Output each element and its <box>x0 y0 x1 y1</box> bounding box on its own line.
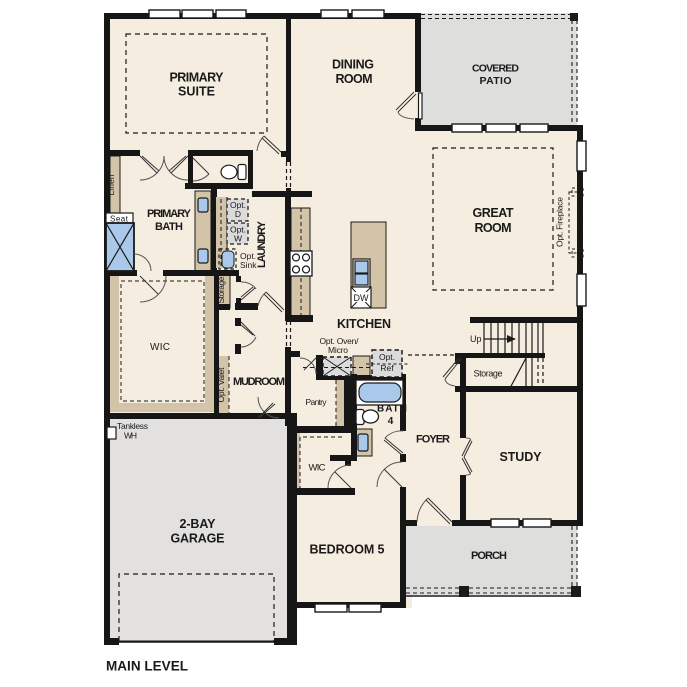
svg-text:4: 4 <box>388 416 394 427</box>
svg-text:W: W <box>234 234 242 244</box>
svg-text:ROOM: ROOM <box>336 72 373 86</box>
svg-text:Micro: Micro <box>328 345 348 355</box>
svg-text:GREAT: GREAT <box>473 206 514 220</box>
svg-text:PORCH: PORCH <box>471 550 507 562</box>
svg-text:2-BAY: 2-BAY <box>180 517 217 531</box>
svg-text:FOYER: FOYER <box>416 434 450 446</box>
svg-text:Linen: Linen <box>106 174 116 195</box>
svg-text:Storage: Storage <box>474 369 503 379</box>
svg-text:DINING: DINING <box>332 58 374 72</box>
svg-text:BEDROOM 5: BEDROOM 5 <box>310 543 385 557</box>
svg-text:Pantry: Pantry <box>306 397 328 407</box>
svg-text:BATH: BATH <box>155 221 183 233</box>
svg-text:DW: DW <box>354 293 369 303</box>
svg-text:Ref: Ref <box>380 363 394 373</box>
svg-text:PATIO: PATIO <box>480 75 512 87</box>
svg-text:Storage: Storage <box>216 276 226 303</box>
svg-text:D: D <box>235 209 241 219</box>
svg-text:WIC: WIC <box>150 342 170 353</box>
svg-text:Tankless: Tankless <box>117 421 148 431</box>
svg-text:PRIMARY: PRIMARY <box>147 208 192 220</box>
svg-text:Opt.: Opt. <box>379 352 395 362</box>
svg-text:SUITE: SUITE <box>178 85 215 99</box>
svg-text:Opt. Valet: Opt. Valet <box>216 367 226 403</box>
svg-text:LAUNDRY: LAUNDRY <box>256 220 268 268</box>
svg-text:Up: Up <box>470 334 482 344</box>
svg-text:STUDY: STUDY <box>500 450 543 464</box>
svg-text:WH: WH <box>124 431 137 441</box>
svg-text:GARAGE: GARAGE <box>171 532 225 546</box>
svg-text:Opt. Fireplace: Opt. Fireplace <box>555 197 565 247</box>
svg-text:WIC: WIC <box>309 463 326 474</box>
svg-text:ROOM: ROOM <box>475 221 512 235</box>
svg-text:Sink: Sink <box>240 260 257 270</box>
svg-text:MAIN LEVEL: MAIN LEVEL <box>106 659 188 674</box>
svg-text:MUDROOM: MUDROOM <box>233 376 285 388</box>
svg-text:COVERED: COVERED <box>472 63 519 75</box>
svg-text:PRIMARY: PRIMARY <box>170 71 225 85</box>
svg-text:KITCHEN: KITCHEN <box>337 317 391 331</box>
svg-text:BATH: BATH <box>377 404 407 415</box>
